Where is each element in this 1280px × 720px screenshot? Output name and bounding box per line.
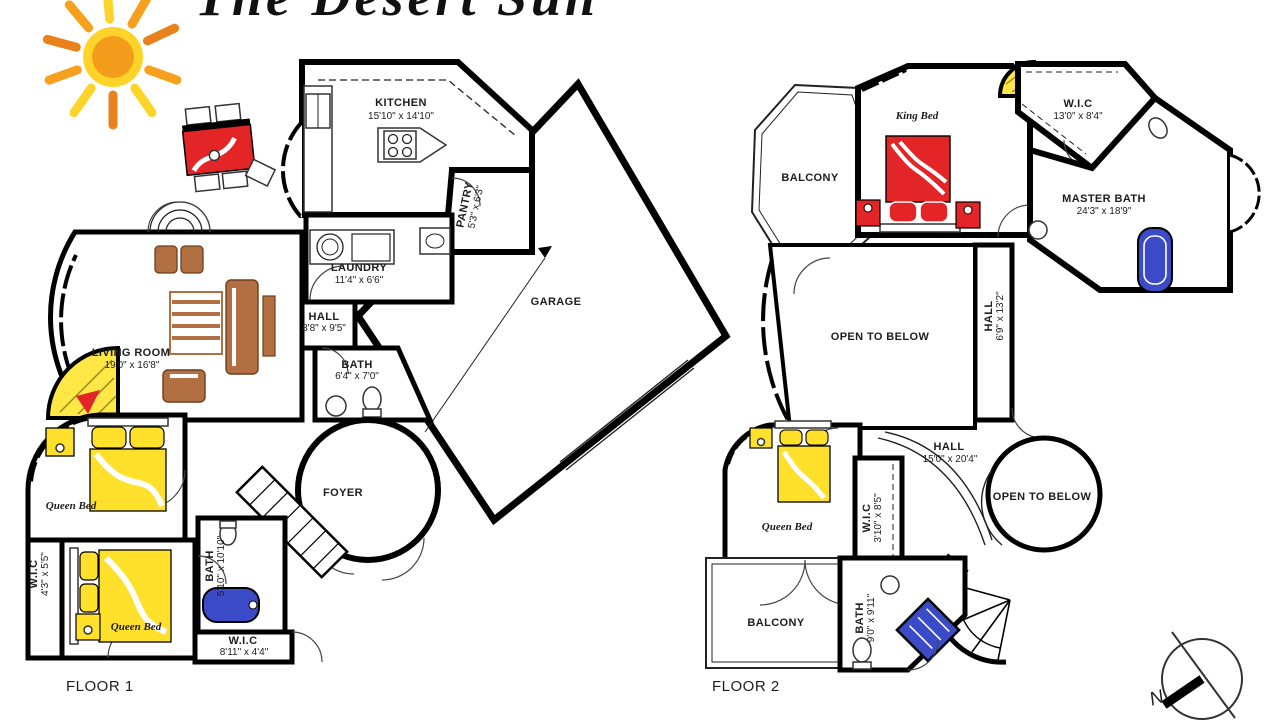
bath-f2-label: BATH [854,602,866,633]
balcony-top-label: BALCONY [781,172,838,184]
wic2-door [292,632,322,662]
wic-f2-dims: 13'0" x 8'4" [1053,111,1103,122]
bedroom2-bed-label: Queen Bed [111,621,162,633]
open-to-below-2-label: OPEN TO BELOW [993,491,1092,503]
kitchen-dims: 15'10" x 14'10" [368,111,434,122]
living-room-dims: 19'0" x 16'8" [105,360,160,371]
bedroom1-bed-label: Queen Bed [46,500,97,512]
hall-to-bath-door [1012,408,1042,438]
master-bath-turret [1230,155,1259,232]
entry-steps [150,202,210,232]
master-bath-dims: 24'3" x 18'9" [1077,206,1132,217]
wic2-f2-label: W.I.C [861,504,873,533]
bath2-dims: 5'10" x 10'10" [216,535,227,596]
nook-bay-window [283,122,302,218]
laundry-label: LAUNDRY [331,262,387,274]
balcony-bottom [706,558,855,668]
hall2-dims: 15'0" x 20'4" [923,454,978,465]
entry-doors [148,202,210,232]
floor2-label: FLOOR 2 [712,678,780,695]
compass-north-arrow [1164,679,1202,705]
hall-upper-dims: 6'9" x 13'2" [995,291,1006,341]
hall2-label: HALL [934,441,965,453]
kitchen-label: KITCHEN [375,97,427,109]
wic1-label: W.I.C [28,560,40,589]
wic-f2-label: W.I.C [1064,98,1093,110]
bath1-dims: 6'4" x 7'0" [335,371,379,382]
open-to-below-1-label: OPEN TO BELOW [831,331,930,343]
bath-f2-dims: 9'0" x 9'11" [866,593,877,642]
king-bed-label: King Bed [895,110,939,122]
wic1-dims: 4'3" x 5'5" [40,552,51,596]
master-bath-label: MASTER BATH [1062,193,1146,205]
dining-table [180,101,276,195]
floorplan-canvas: KITCHEN 15'10" x 14'10" PANTRY 5'3" x 6'… [0,0,1280,720]
hall1-dims: 8'8" x 9'5" [302,323,346,334]
bath1-label: BATH [341,359,372,371]
floor1-label: FLOOR 1 [66,678,134,695]
garage-label: GARAGE [531,296,582,308]
balcony-bottom-label: BALCONY [747,617,804,629]
foyer-label: FOYER [323,487,363,499]
sun-icon [47,0,177,125]
hall-upper-label: HALL [983,301,995,332]
floor1-plan: KITCHEN 15'10" x 14'10" PANTRY 5'3" x 6'… [28,62,726,695]
floor2-plan: BALCONY King Bed W.I.C 13'0" x 8'4" MAST… [706,62,1259,695]
laundry-dims: 11'4" x 6'6" [335,275,384,286]
bedroom3-bed-label: Queen Bed [762,521,813,533]
wic2-dims: 8'11" x 4'4" [220,647,269,658]
floorplan-page: { "title": "The Desert Sun", "floor1": {… [0,0,1280,720]
hall1-label: HALL [309,311,340,323]
wic2-label: W.I.C [229,635,258,647]
compass-line [1172,632,1235,718]
wic2-f2-dims: 3'10" x 8'5" [873,493,884,543]
bath2-label: BATH [204,550,216,581]
hall-upper-room [975,245,1012,420]
compass: N [1147,632,1242,719]
living-room-label: LIVING ROOM [92,347,170,359]
